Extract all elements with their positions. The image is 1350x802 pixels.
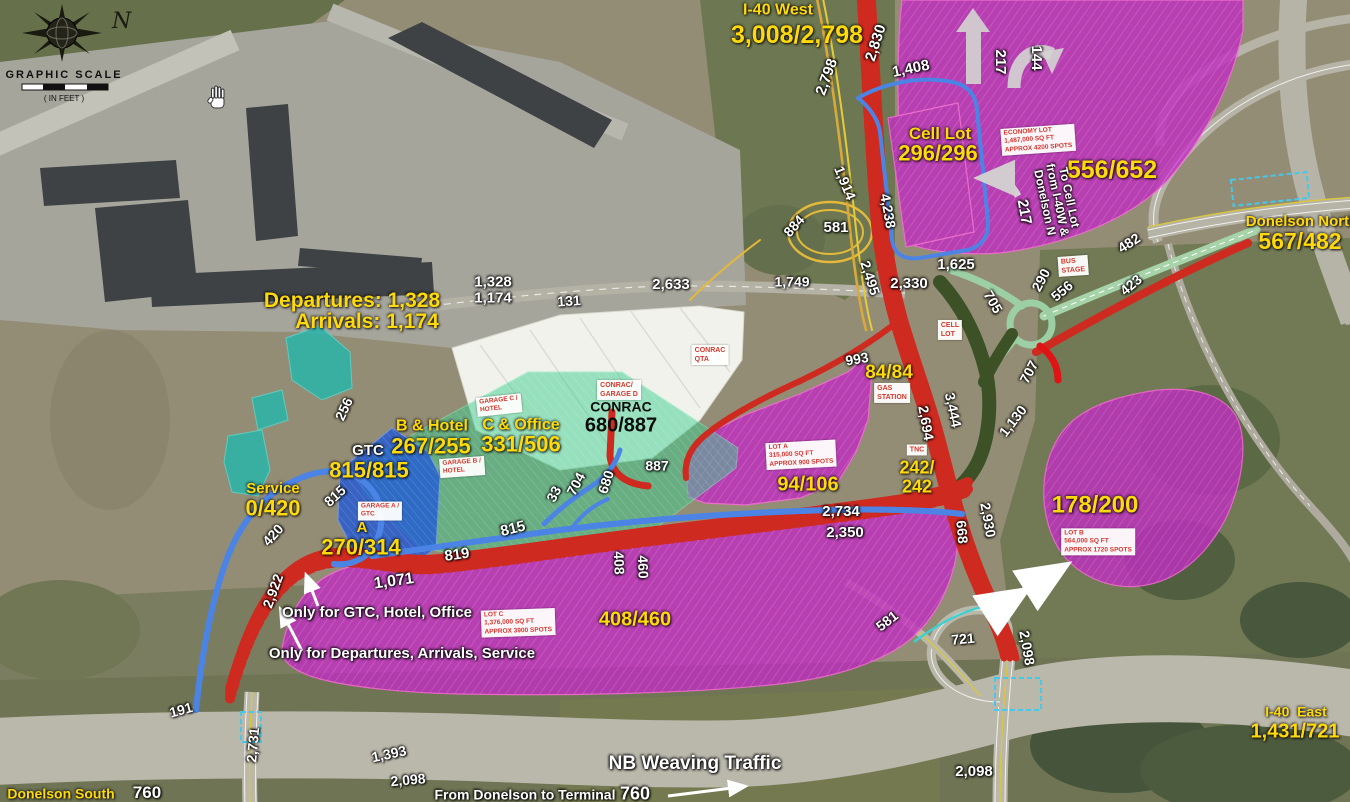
- label-arrivals: Arrivals: 1,174: [295, 311, 439, 333]
- count-815-road: 815: [499, 518, 527, 539]
- note-only-gtc: Only for GTC, Hotel, Office: [282, 605, 472, 621]
- count-680: 680: [595, 469, 616, 496]
- count-donelson-north: 567/482: [1258, 230, 1341, 254]
- count-668: 668: [954, 520, 971, 545]
- count-4238: 4,238: [878, 192, 898, 229]
- count-1625: 1,625: [937, 257, 975, 273]
- count-707: 707: [1017, 358, 1041, 385]
- count-cell-lot: 296/296: [898, 143, 978, 166]
- count-1130: 1,130: [996, 403, 1029, 440]
- count-2495: 2,495: [858, 259, 883, 297]
- count-217-cell: 217: [1014, 198, 1034, 225]
- sign-lot-b: LOT B 564,000 SQ FT APPROX 1720 SPOTS: [1061, 528, 1135, 555]
- count-144: 144: [1028, 45, 1044, 70]
- label-i40-east: I-40 East: [1265, 705, 1326, 720]
- label-nb-weaving: NB Weaving Traffic: [609, 754, 782, 774]
- label-departures: Departures: 1,328: [264, 290, 440, 312]
- count-i40-west: 3,008/2,798: [731, 22, 863, 48]
- note-from-donelson: From Donelson to Terminal: [435, 788, 616, 802]
- sign-garage-a: GARAGE A / GTC: [358, 502, 402, 521]
- label-garage-b-hotel: B & Hotel: [396, 419, 468, 436]
- count-gas-station: 84/84: [865, 363, 913, 383]
- label-cell-lot: Cell Lot: [909, 125, 971, 143]
- count-460: 460: [635, 555, 650, 579]
- count-2098-left: 2,098: [390, 771, 426, 789]
- count-819: 819: [444, 546, 471, 565]
- count-garage-c-office: 331/506: [481, 434, 561, 457]
- count-2930: 2,930: [978, 501, 998, 538]
- count-2830: 2,830: [863, 23, 889, 64]
- count-256: 256: [332, 395, 355, 422]
- count-garage-b-hotel: 267/255: [391, 436, 471, 459]
- count-482: 482: [1115, 231, 1143, 256]
- count-2098-right: 2,098: [955, 764, 993, 780]
- label-gtc: GTC: [352, 443, 384, 459]
- sign-garage-c: GARAGE C / HOTEL: [476, 393, 522, 416]
- count-217-up: 217: [992, 49, 1008, 74]
- sign-gas-station: GAS STATION: [874, 383, 910, 403]
- count-423: 423: [1117, 272, 1144, 298]
- count-290: 290: [1029, 266, 1053, 293]
- count-i40-east: 1,431/721: [1251, 722, 1340, 743]
- count-curb-stack: 1,328 1,174: [474, 274, 512, 305]
- count-420: 420: [260, 521, 286, 548]
- sign-garage-b: GARAGE B / HOTEL: [439, 456, 485, 478]
- label-service: Service: [246, 481, 299, 497]
- count-2098-vert: 2,098: [1017, 629, 1037, 666]
- count-581-ramp: 581: [873, 608, 900, 634]
- count-2734: 2,734: [822, 504, 860, 520]
- label-donelson-north: Donelson North: [1246, 214, 1350, 230]
- count-704: 704: [564, 470, 588, 497]
- count-760-left: 760: [133, 784, 161, 802]
- count-2694: 2,694: [916, 404, 936, 441]
- count-887: 887: [645, 459, 668, 474]
- count-2731: 2,731: [244, 727, 262, 763]
- count-2798: 2,798: [813, 57, 840, 98]
- sign-bus-stage: BUS STAGE: [1058, 255, 1089, 277]
- note-only-departures: Only for Departures, Arrivals, Service: [269, 646, 535, 662]
- count-gtc: 815/815: [329, 460, 409, 483]
- label-i40-west: I-40 West: [743, 3, 813, 20]
- count-1393: 1,393: [370, 743, 407, 765]
- count-service: 0/420: [245, 498, 300, 521]
- count-2350: 2,350: [826, 525, 864, 541]
- note-to-cell-lot: To Cell Lot from I-40W & Donelson N: [1031, 160, 1083, 240]
- count-760-mid: 760: [620, 785, 650, 802]
- label-donelson-south: Donelson South: [7, 787, 114, 802]
- sign-lot-a: LOT A 315,000 SQ FT APPROX 900 SPOTS: [765, 440, 836, 471]
- count-33: 33: [544, 484, 564, 505]
- count-2633: 2,633: [652, 277, 690, 293]
- count-1749: 1,749: [774, 275, 809, 290]
- count-lot-a: 94/106: [777, 475, 838, 496]
- sign-tnc: TNC: [907, 444, 927, 455]
- count-lot-c: 408/460: [599, 610, 671, 631]
- count-tnc: 242/ 242: [899, 458, 934, 495]
- count-lot-b: 178/200: [1052, 494, 1139, 519]
- count-581-loop: 581: [823, 220, 848, 236]
- sign-conrac-garage-d: CONRAC/ GARAGE D: [597, 380, 641, 400]
- sign-cell-lot: CELL LOT: [938, 320, 962, 340]
- count-1071: 1,071: [373, 571, 415, 593]
- label-garage-a: A: [357, 520, 368, 536]
- count-884: 884: [781, 212, 807, 239]
- count-721: 721: [951, 631, 976, 648]
- label-garage-c-office: C & Office: [482, 418, 559, 435]
- label-conrac: CONRAC: [590, 400, 651, 415]
- count-993: 993: [844, 350, 870, 368]
- count-1914: 1,914: [832, 164, 859, 202]
- count-191: 191: [168, 700, 194, 720]
- count-3444: 3,444: [942, 391, 964, 428]
- count-815-gtc: 815: [321, 483, 348, 509]
- count-1408: 1,408: [891, 57, 931, 80]
- count-conrac: 680/887: [585, 416, 657, 437]
- count-131: 131: [557, 293, 581, 309]
- sign-conrac-qta: CONRAC QTA: [692, 345, 729, 365]
- sign-lot-c: LOT C 1,376,000 SQ FT APPROX 3900 SPOTS: [481, 608, 555, 638]
- count-705: 705: [981, 288, 1005, 316]
- count-408: 408: [611, 551, 626, 575]
- count-economy-lot: 556/652: [1067, 157, 1157, 183]
- count-2922: 2,922: [260, 572, 286, 610]
- airport-traffic-map[interactable]: N GRAPHIC SCALE ( IN FEET ) I-40 West3,0…: [0, 0, 1350, 802]
- count-2330: 2,330: [890, 276, 928, 292]
- count-556: 556: [1048, 278, 1075, 304]
- label-layer: I-40 West3,008/2,798Cell Lot296/296556/6…: [0, 0, 1350, 802]
- sign-economy-lot: ECONOMY LOT 1,487,000 SQ FT APPROX 4200 …: [1000, 124, 1075, 156]
- count-garage-a: 270/314: [321, 537, 401, 560]
